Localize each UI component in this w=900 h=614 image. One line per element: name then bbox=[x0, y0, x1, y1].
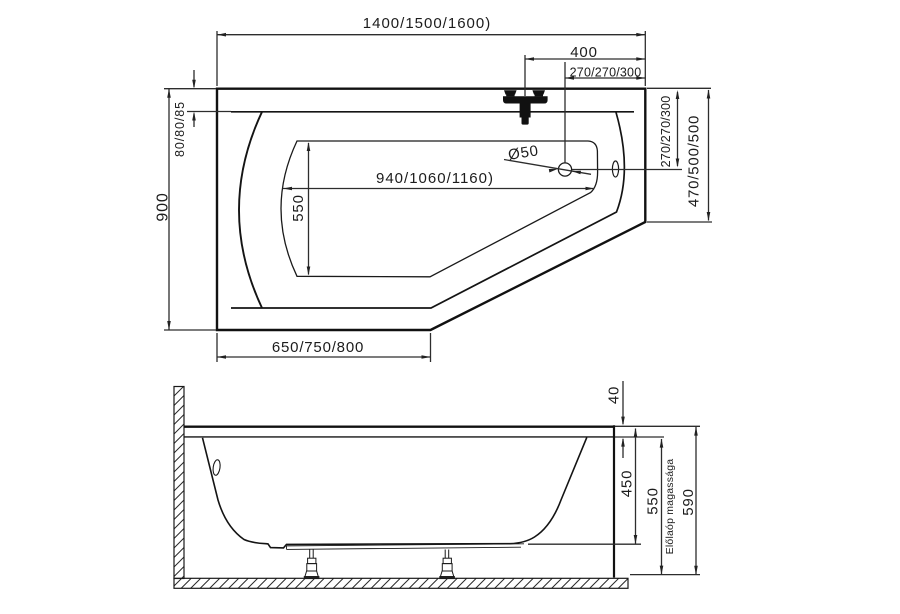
svg-text:550: 550 bbox=[645, 487, 662, 514]
svg-text:Előlaóp magassága: Előlaóp magassága bbox=[664, 459, 676, 555]
svg-text:270/270/300: 270/270/300 bbox=[659, 96, 673, 168]
svg-text:80/80/85: 80/80/85 bbox=[173, 101, 187, 157]
svg-text:900: 900 bbox=[155, 192, 172, 221]
svg-text:Ø50: Ø50 bbox=[507, 142, 540, 164]
svg-text:550: 550 bbox=[290, 194, 307, 221]
svg-text:650/750/800: 650/750/800 bbox=[272, 339, 364, 356]
svg-text:940/1060/1160): 940/1060/1160) bbox=[376, 170, 494, 187]
svg-text:40: 40 bbox=[606, 386, 623, 404]
svg-text:470/500/500: 470/500/500 bbox=[686, 115, 703, 207]
svg-text:270/270/300: 270/270/300 bbox=[570, 66, 642, 80]
svg-text:450: 450 bbox=[619, 470, 636, 497]
svg-text:1400/1500/1600): 1400/1500/1600) bbox=[363, 15, 491, 32]
svg-text:400: 400 bbox=[570, 44, 597, 61]
svg-text:590: 590 bbox=[680, 488, 697, 515]
